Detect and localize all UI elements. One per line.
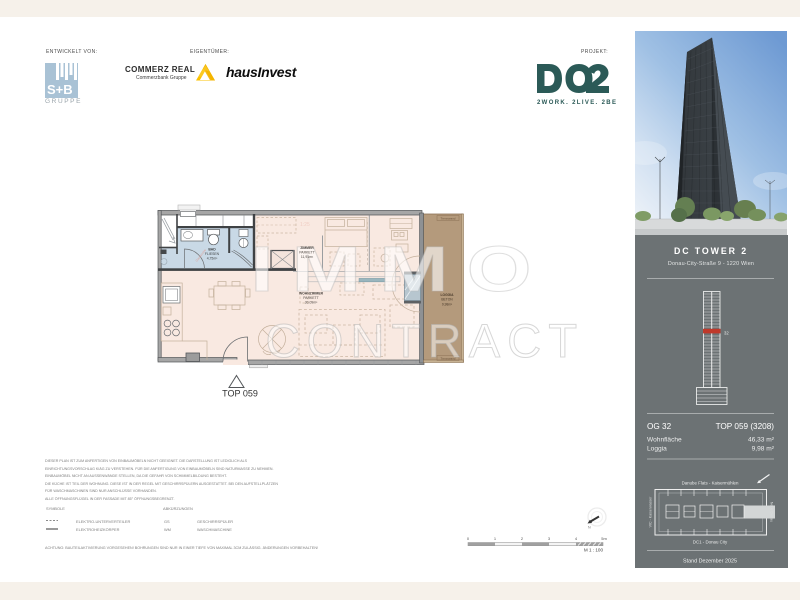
svg-text:Stand Dezember 2025: Stand Dezember 2025 [683, 559, 737, 565]
svg-text:VIC - Kaiserwasser: VIC - Kaiserwasser [649, 496, 653, 528]
svg-text:Danube Flats - Kaisermühlen: Danube Flats - Kaisermühlen [682, 481, 739, 486]
svg-text:DC1 - Donau City: DC1 - Donau City [693, 540, 728, 545]
svg-text:TOP 059 (3208): TOP 059 (3208) [716, 422, 775, 431]
svg-text:OG 32: OG 32 [647, 422, 672, 431]
svg-text:9,98 m²: 9,98 m² [752, 446, 775, 453]
svg-text:Neue Donau: Neue Donau [770, 502, 774, 522]
svg-text:Wohnfläche: Wohnfläche [647, 437, 682, 444]
svg-text:32: 32 [724, 331, 729, 336]
svg-text:Loggia: Loggia [647, 446, 667, 453]
svg-text:46,33 m²: 46,33 m² [748, 437, 775, 444]
